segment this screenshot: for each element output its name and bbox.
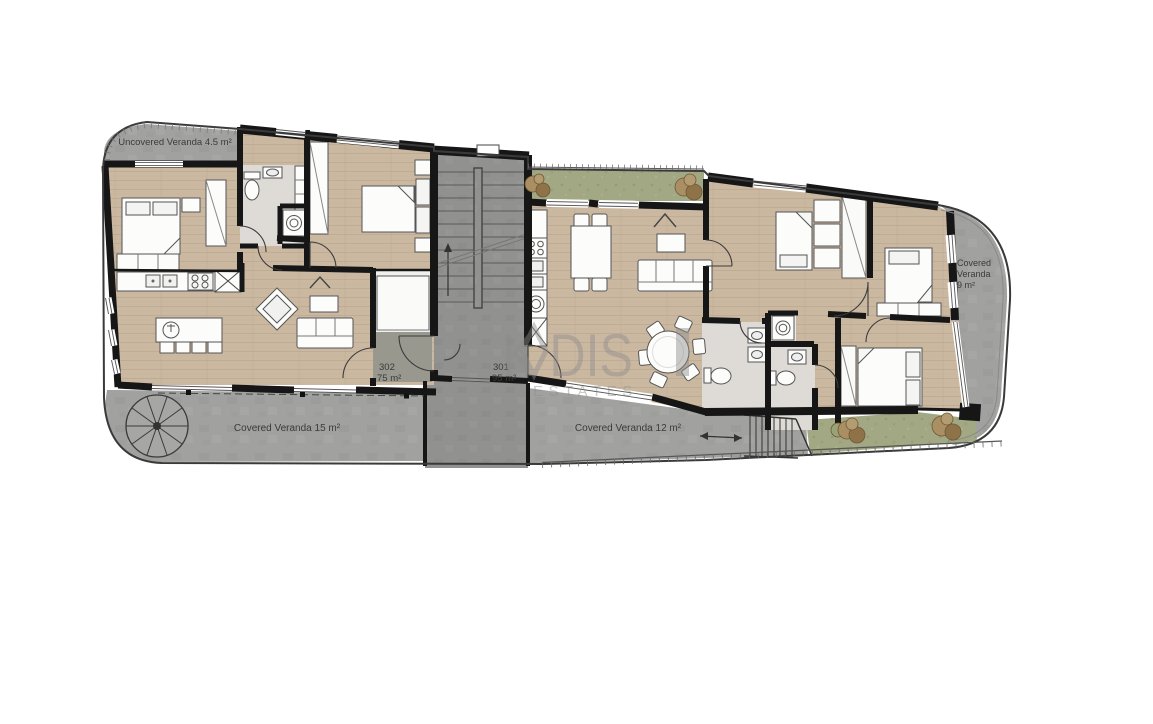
toilet-301a-icon bbox=[704, 368, 731, 384]
window-planter-2 bbox=[599, 203, 638, 207]
wardrobe-301-3 bbox=[841, 346, 856, 406]
bed-301-3 bbox=[858, 348, 922, 406]
basin-302-icon bbox=[263, 167, 282, 178]
washing-machine-302-icon bbox=[283, 210, 305, 236]
washing-machine-301-icon bbox=[772, 316, 794, 340]
label-unit-302-area: 75 m² bbox=[377, 373, 401, 384]
label-covered-veranda-15: Covered Veranda 15 m² bbox=[234, 423, 341, 434]
kitchen-counter-302 bbox=[117, 270, 243, 292]
kitchen-island-302 bbox=[156, 318, 222, 353]
label-covered-veranda-9-line2: Veranda bbox=[957, 269, 991, 279]
window-302-left-1 bbox=[106, 298, 113, 314]
label-covered-veranda-9-line1: Covered bbox=[957, 258, 991, 268]
window-planter-1 bbox=[547, 202, 588, 206]
window-301-right-1 bbox=[949, 235, 955, 263]
wardrobe-301-1 bbox=[842, 196, 866, 278]
floor-plan-page: Uncovered Veranda 4.5 m² Covered Veranda… bbox=[0, 0, 1153, 724]
watermark-sub-text: ESTATES bbox=[533, 383, 638, 400]
window-302-veranda-top bbox=[135, 163, 183, 166]
window-301-right-2 bbox=[951, 282, 957, 308]
toilet-302-icon bbox=[244, 172, 260, 200]
floor-plan-canvas: Uncovered Veranda 4.5 m² Covered Veranda… bbox=[0, 0, 1153, 724]
label-covered-veranda-9-line3: 9 m² bbox=[957, 280, 975, 290]
entry-strip-area bbox=[425, 380, 528, 468]
label-uncovered-veranda: Uncovered Veranda 4.5 m² bbox=[118, 137, 232, 148]
bench-302 bbox=[117, 254, 179, 270]
label-unit-302-id: 302 bbox=[379, 362, 395, 373]
toilet-301b-icon bbox=[770, 371, 795, 385]
label-covered-veranda-12: Covered Veranda 12 m² bbox=[575, 423, 682, 434]
watermark-bar-icon bbox=[676, 328, 689, 376]
wardrobe-302-1 bbox=[206, 180, 226, 246]
console-301 bbox=[657, 234, 685, 252]
console-302 bbox=[310, 296, 338, 312]
wardrobe-302-2 bbox=[310, 142, 328, 234]
window-302-left-2 bbox=[109, 330, 116, 346]
vestibule-closet-302 bbox=[377, 276, 429, 330]
window-302-left-3 bbox=[112, 360, 119, 374]
sofa-302 bbox=[297, 318, 353, 348]
spiral-staircase bbox=[126, 395, 188, 457]
bed-301-2 bbox=[877, 248, 941, 316]
sofa-301 bbox=[638, 260, 712, 291]
basin-301b-icon bbox=[788, 350, 806, 364]
